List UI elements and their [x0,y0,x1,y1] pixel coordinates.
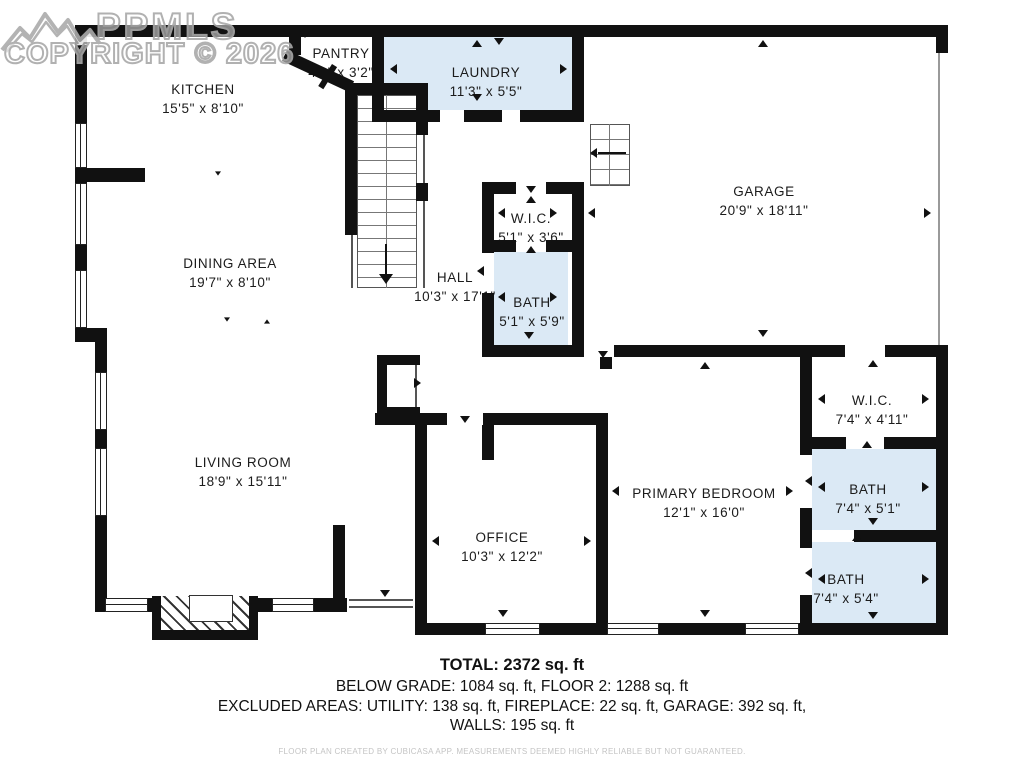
door-dimension-marker [460,416,470,423]
fireplace-insert [189,595,233,622]
wall-segment [800,595,812,635]
entry-threshold [349,606,413,608]
wall-segment [372,25,384,122]
wall-segment [416,183,428,201]
door-dimension-marker [472,40,482,47]
wall-segment [333,525,345,612]
room-label-dining: DINING AREA19'7" x 8'10" [183,254,277,292]
window [105,598,148,612]
window [75,123,87,168]
wall-segment [483,413,608,425]
window [272,598,314,612]
wall-segment [95,328,107,372]
stair-direction-arrow [385,244,387,276]
garage-door [938,50,940,348]
door-dimension-marker [922,482,929,492]
door-dimension-marker [524,349,534,356]
wall-segment [345,83,428,95]
door-dimension-marker [560,64,567,74]
window-pane-line [80,271,81,327]
door-dimension-marker [922,394,929,404]
staircase-rail [423,135,425,288]
door-dimension-marker [526,196,536,203]
door-dimension-marker [390,64,397,74]
door-dimension-marker [526,186,536,193]
door-dimension-marker [215,171,221,175]
door-dimension-marker [862,441,872,448]
door-dimension-marker [922,574,929,584]
wall-segment [885,345,948,357]
window [75,270,87,328]
door-dimension-marker [588,208,595,218]
door-dimension-marker [498,292,505,302]
door-dimension-marker [818,394,825,404]
walls-area-line: WALLS: 195 sq. ft [0,717,1024,735]
door-dimension-marker [526,246,536,253]
door-dimension-marker [524,332,534,339]
wall-segment [572,182,584,357]
wall-segment [936,25,948,53]
window [95,448,107,516]
room-label-kitchen: KITCHEN15'5" x 8'10" [162,80,244,118]
wall-segment [854,530,936,542]
door-dimension-marker [758,330,768,337]
wall-segment [482,425,494,460]
wall-segment [464,110,502,122]
wall-segment [75,168,145,182]
disclaimer-text: FLOOR PLAN CREATED BY CUBICASA APP. MEAS… [0,747,1024,756]
wall-segment [75,245,87,270]
door-dimension-marker [477,266,484,276]
door-dimension-marker [700,610,710,617]
window-pane-line [80,184,81,244]
wall-segment [377,407,420,417]
door-dimension-marker [805,568,812,578]
door-dimension-marker [924,208,931,218]
window-pane-line [608,628,658,629]
wall-segment [600,357,612,369]
wall-segment [345,95,357,235]
room-label-living: LIVING ROOM18'9" x 15'11" [195,453,292,491]
area-summary: TOTAL: 2372 sq. ft BELOW GRADE: 1084 sq.… [0,656,1024,756]
door-dimension-marker [494,38,504,45]
window-pane-line [486,628,539,629]
door-dimension-marker [550,292,557,302]
wall-segment [884,437,936,449]
door-dimension-marker [818,482,825,492]
door-dimension-marker [380,590,390,597]
door-dimension-marker [498,610,508,617]
total-area: TOTAL: 2372 sq. ft [0,656,1024,675]
wall-segment [415,423,427,635]
wall-segment [372,110,440,122]
floor-plan: PPMLS COPYRIGHT © 2026 KITCHEN15'5" x 8'… [0,0,1024,767]
fireplace [152,596,258,640]
main-staircase [357,95,417,288]
door-dimension-marker [786,486,793,496]
wall-segment [416,95,428,135]
door-dimension-marker [852,534,862,541]
door-dimension-marker [612,486,619,496]
door-dimension-marker [805,476,812,486]
excluded-areas-line: EXCLUDED AREAS: UTILITY: 138 sq. ft, FIR… [0,698,1024,716]
door-dimension-marker [584,536,591,546]
wall-segment [95,430,107,448]
door-dimension-marker [264,319,270,323]
room-label-bath1: BATH7'4" x 5'1" [835,480,901,518]
door-dimension-marker [818,574,825,584]
wall-segment [800,345,812,455]
window-pane-line [100,373,101,429]
wall-segment [800,508,812,548]
door-dimension-marker [598,351,608,358]
window [745,623,799,635]
door-dimension-marker [432,536,439,546]
door-dimension-marker [472,94,482,101]
room-label-garage: GARAGE20'9" x 18'11" [720,182,809,220]
garage-steps-arrow [598,152,626,154]
wall-segment [936,348,948,635]
door-dimension-marker [700,362,710,369]
window-pane-line [746,628,798,629]
garage-steps-arrow-head [590,148,597,158]
window-pane-line [100,449,101,515]
room-label-laundry: LAUNDRY11'3" x 5'5" [450,63,523,101]
wall-segment [482,182,494,253]
entry-threshold [349,599,413,601]
garage-steps-center-line [609,124,610,186]
window-pane-line [80,124,81,167]
wall-segment [546,182,580,194]
staircase-rail [351,235,353,288]
door-dimension-marker [868,612,878,619]
door-dimension-marker [868,518,878,525]
window [485,623,540,635]
room-label-primary-bedroom: PRIMARY BEDROOM12'1" x 16'0" [632,484,776,522]
door-dimension-marker [498,208,505,218]
watermark: PPMLS COPYRIGHT © 2026 [0,0,120,63]
window-pane-line [273,604,313,605]
door-dimension-marker [300,31,310,38]
area-breakdown-line: BELOW GRADE: 1084 sq. ft, FLOOR 2: 1288 … [0,678,1024,696]
wall-segment [572,25,584,122]
wall-segment [546,240,580,252]
wall-segment [596,413,608,635]
window-pane-line [106,604,147,605]
window [95,372,107,430]
door-dimension-marker [868,360,878,367]
window [607,623,659,635]
door-dimension-marker [224,317,230,321]
wall-segment [812,437,846,449]
stair-arrow-head [379,274,393,284]
room-label-wic-right: W.I.C.7'4" x 4'11" [836,391,909,429]
watermark-copyright: COPYRIGHT © 2026 [4,38,294,71]
door-dimension-marker [758,40,768,47]
room-label-office: OFFICE10'3" x 12'2" [461,528,543,566]
door-dimension-marker [550,208,557,218]
door-dimension-marker [414,378,421,388]
window [75,183,87,245]
